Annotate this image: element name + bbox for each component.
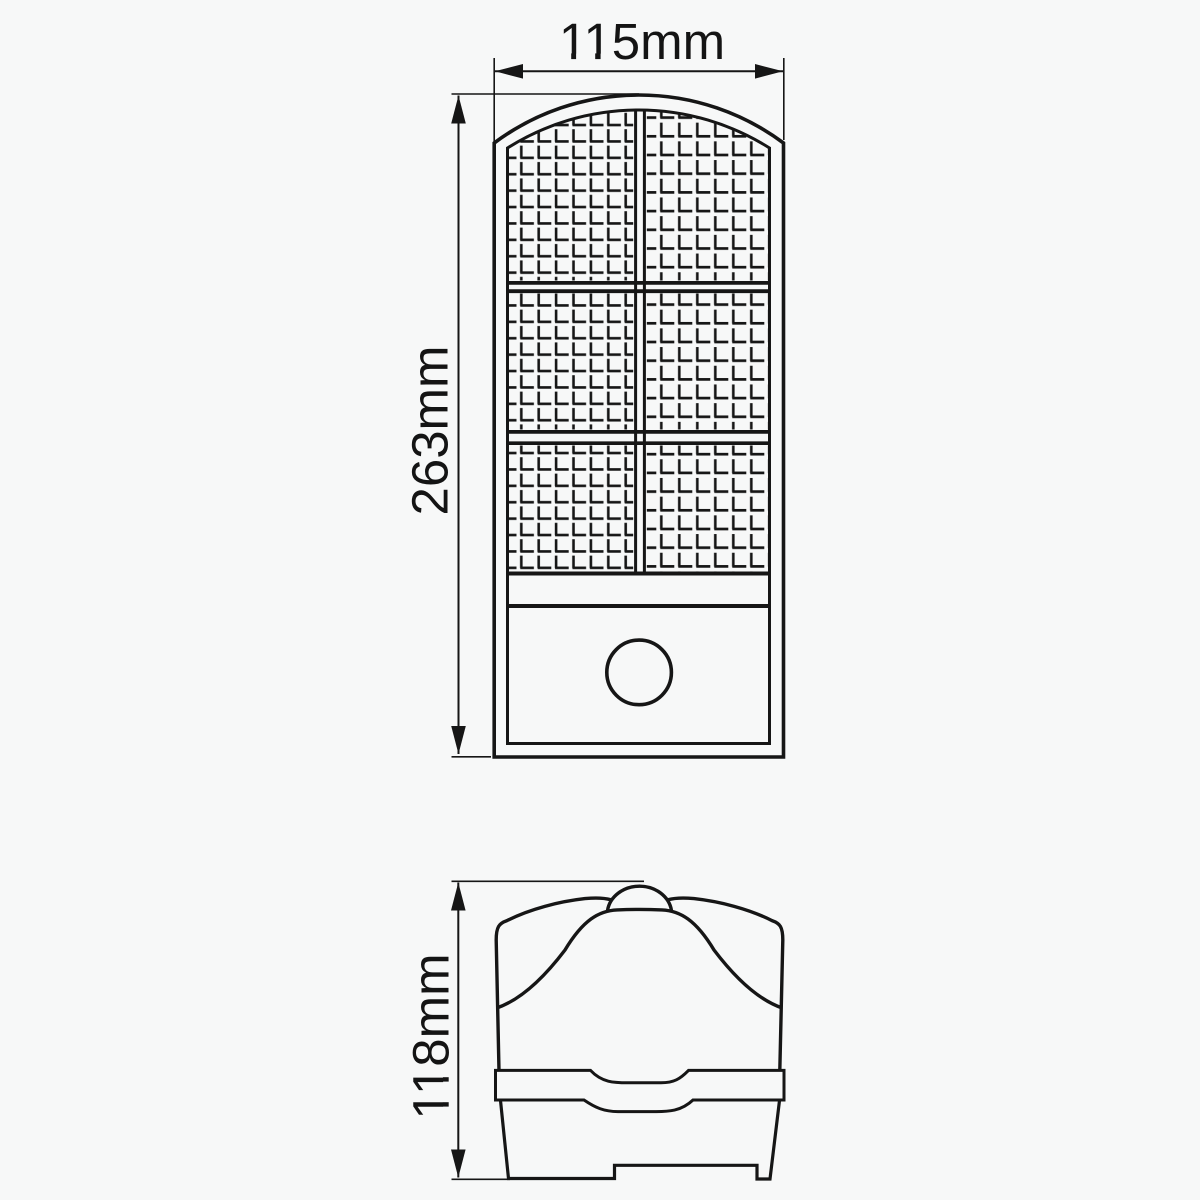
svg-text:263mm: 263mm [402,345,459,515]
svg-text:115mm: 115mm [559,13,725,70]
svg-text:118mm: 118mm [403,953,460,1119]
